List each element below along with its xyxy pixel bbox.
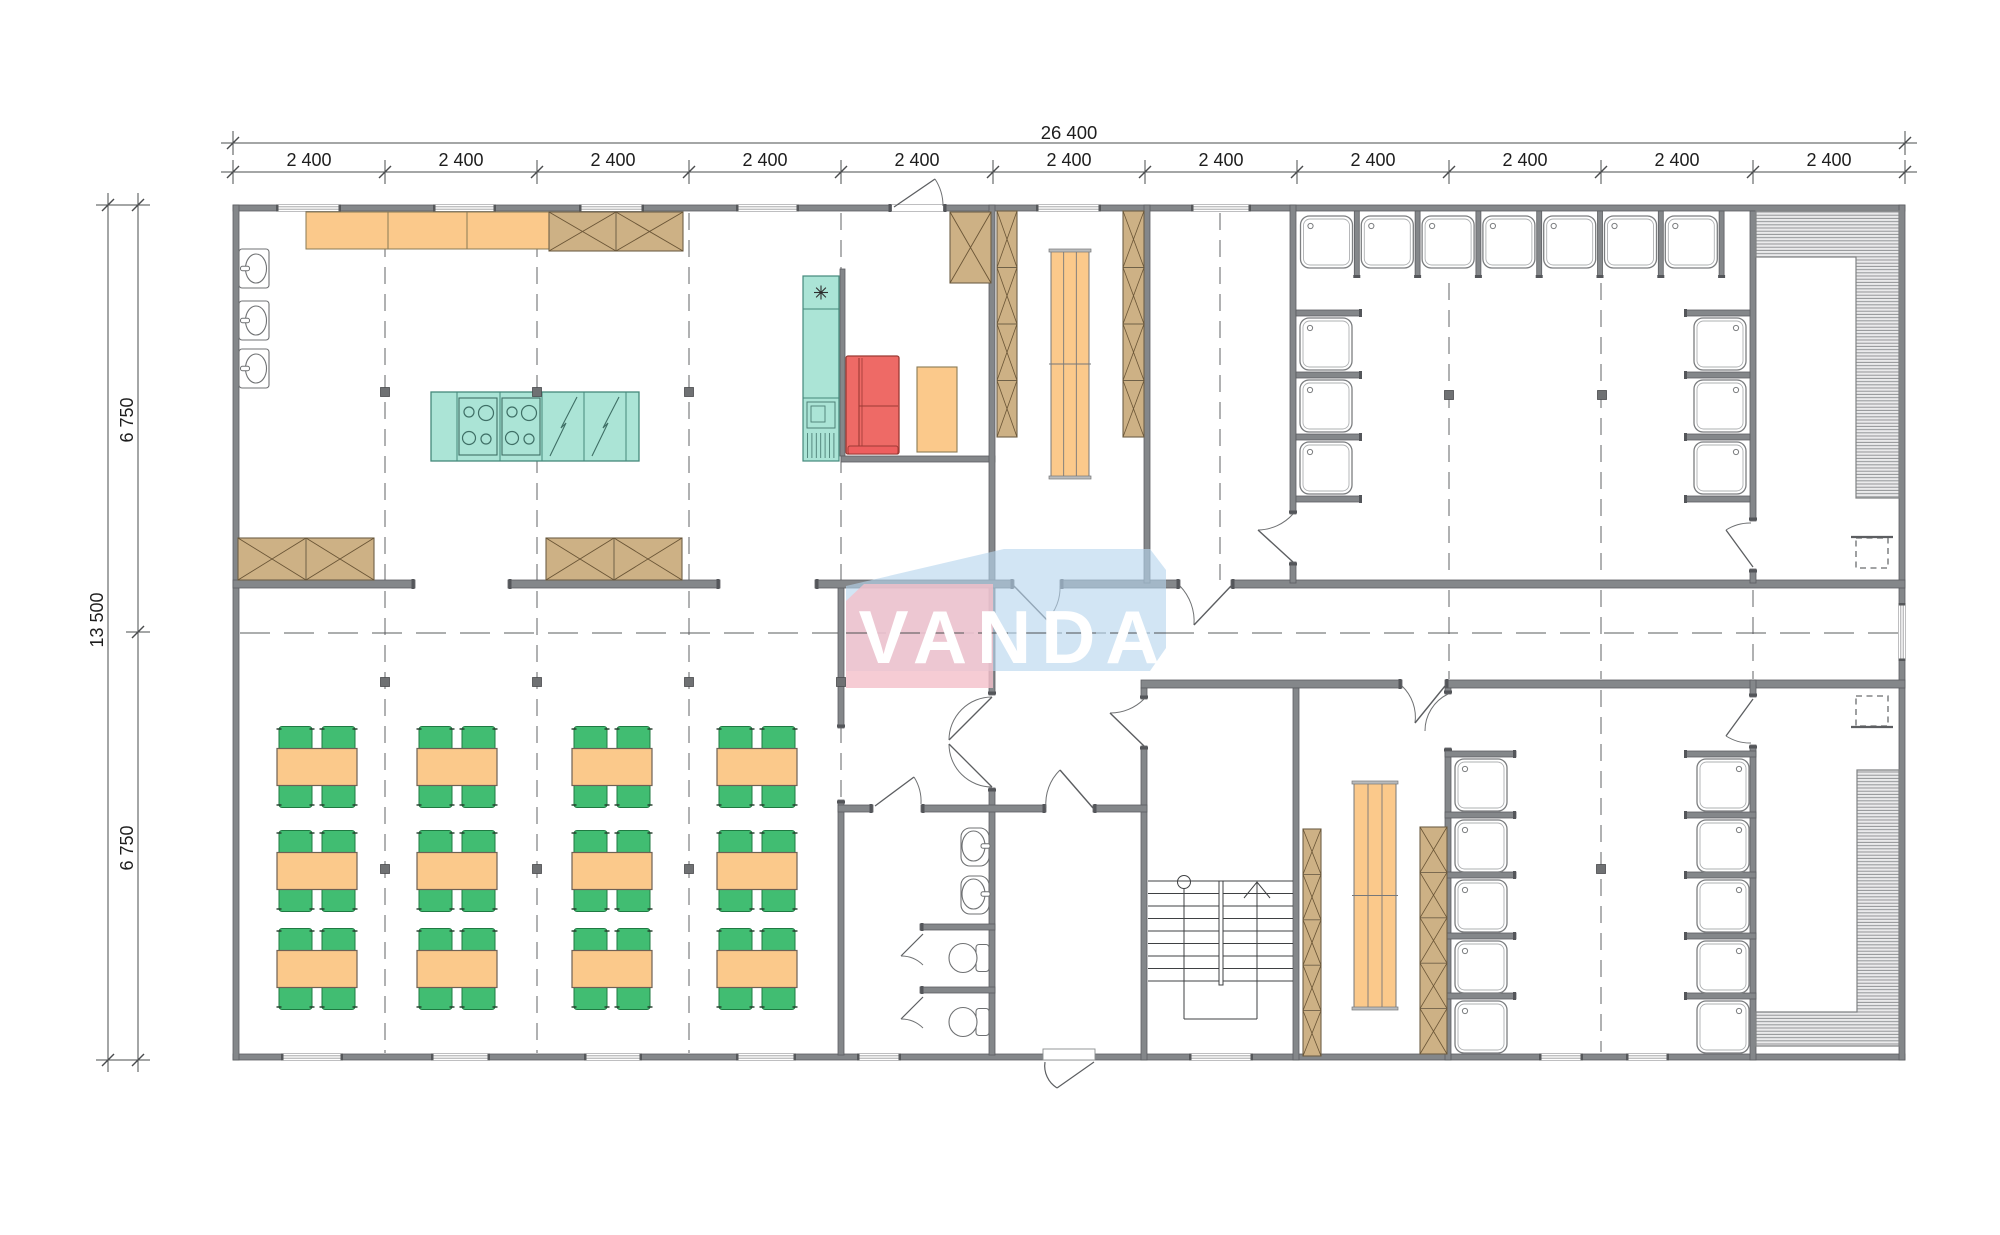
svg-text:26 400: 26 400 <box>1041 122 1098 143</box>
svg-text:2 400: 2 400 <box>590 150 635 170</box>
svg-text:2 400: 2 400 <box>286 150 331 170</box>
svg-text:2 400: 2 400 <box>438 150 483 170</box>
svg-text:2 400: 2 400 <box>1806 150 1851 170</box>
svg-text:2 400: 2 400 <box>1046 150 1091 170</box>
svg-text:6 750: 6 750 <box>117 825 137 870</box>
svg-text:2 400: 2 400 <box>742 150 787 170</box>
svg-text:2 400: 2 400 <box>1502 150 1547 170</box>
svg-text:13 500: 13 500 <box>87 592 107 647</box>
svg-text:6 750: 6 750 <box>117 397 137 442</box>
svg-text:2 400: 2 400 <box>1350 150 1395 170</box>
svg-text:2 400: 2 400 <box>1654 150 1699 170</box>
svg-text:2 400: 2 400 <box>1198 150 1243 170</box>
svg-text:VANDA: VANDA <box>858 595 1169 679</box>
svg-text:2 400: 2 400 <box>894 150 939 170</box>
